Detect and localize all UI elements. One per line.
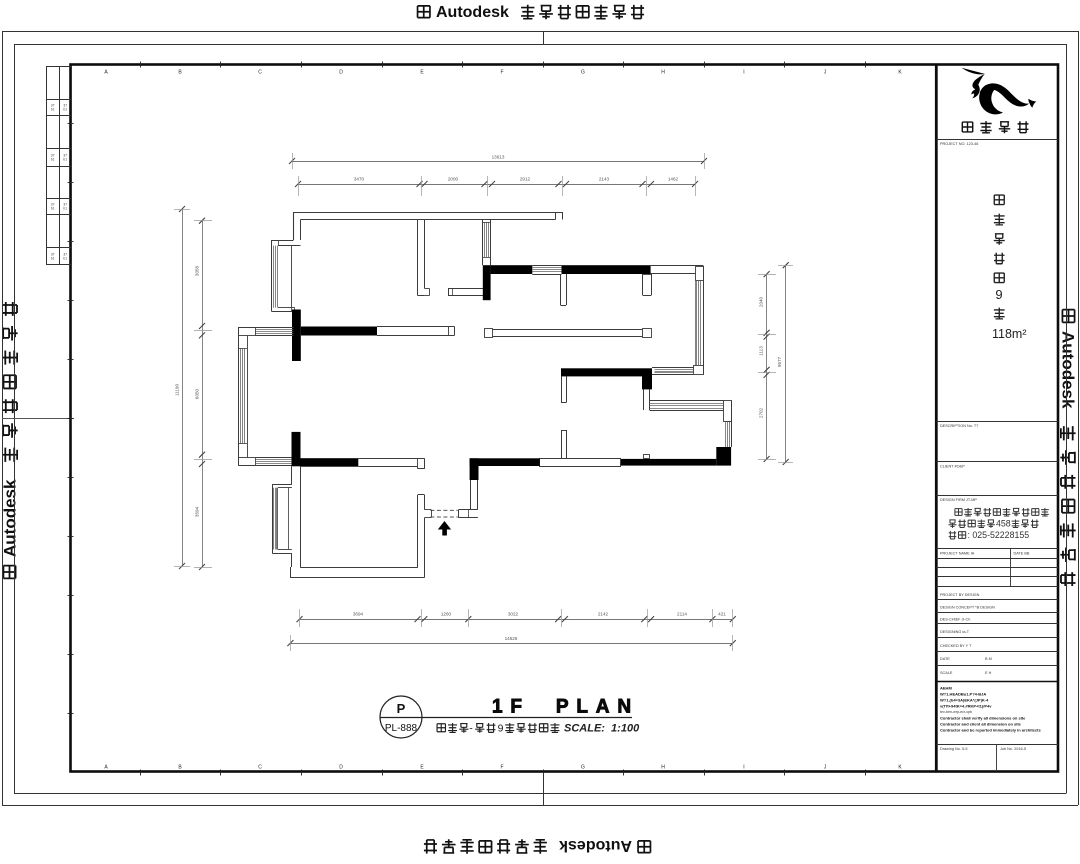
svg-text:3470: 3470 [354, 177, 365, 182]
svg-text:2114: 2114 [677, 612, 687, 617]
svg-text:1462: 1462 [668, 177, 679, 182]
svg-text:b1: b1 [63, 158, 67, 162]
svg-text:tev-ben-wrp-ecr-cpb: tev-ben-wrp-ecr-cpb [940, 710, 972, 714]
svg-text:DESIGN CONCEPT *B DESIGN: DESIGN CONCEPT *B DESIGN [940, 606, 995, 610]
svg-text:E H: E H [985, 671, 992, 675]
svg-text:b1: b1 [63, 207, 67, 211]
svg-text:F: F [500, 765, 503, 771]
svg-text:421: 421 [718, 612, 726, 617]
svg-text:b1: b1 [51, 158, 55, 162]
svg-text:v(Tft+94tK=4.#RKP+t1)/P4v: v(Tft+94tK=4.#RKP+t1)/P4v [940, 704, 992, 709]
svg-text:W?1.HEADBu1.P?4-BJA: W?1.HEADBu1.P?4-BJA [940, 692, 986, 697]
svg-text:2000: 2000 [448, 177, 459, 182]
svg-text:PROJECT NO. 123-46: PROJECT NO. 123-46 [940, 142, 978, 146]
svg-text:PROJECT NAME IA: PROJECT NAME IA [940, 552, 975, 556]
svg-text:Autodesk: Autodesk [436, 4, 509, 21]
svg-text:2702: 2702 [759, 407, 764, 418]
svg-text:9577: 9577 [777, 356, 782, 367]
svg-text:Autodesk: Autodesk [559, 837, 632, 854]
svg-text:b1: b1 [63, 108, 67, 112]
svg-text:1F PLAN: 1F PLAN [492, 697, 639, 718]
svg-text:Autodesk: Autodesk [1059, 331, 1078, 409]
svg-text:PROJECT BY DESIGN: PROJECT BY DESIGN [940, 593, 980, 597]
svg-text:DESCRIPTION No. T7: DESCRIPTION No. T7 [940, 424, 978, 428]
svg-text:CHECKED BY Y T: CHECKED BY Y T [940, 644, 972, 648]
svg-text:DATE: DATE [940, 657, 950, 661]
svg-text:b1: b1 [51, 256, 55, 260]
svg-text:Contractor shall verify all di: Contractor shall verify all dimensions o… [940, 716, 1026, 721]
svg-text:Contractor and client all dime: Contractor and client all dimension on s… [940, 722, 1022, 727]
svg-text:I: I [743, 765, 744, 771]
svg-text:3594: 3594 [194, 506, 199, 517]
svg-text:2142: 2142 [598, 612, 609, 617]
svg-text:-: - [469, 723, 473, 735]
svg-text:B M: B M [985, 657, 992, 661]
svg-text:DESIGN FIRM JT-MP: DESIGN FIRM JT-MP [940, 498, 977, 502]
svg-text:C: C [258, 70, 262, 76]
svg-text:9: 9 [995, 287, 1002, 302]
svg-text:AEHM: AEHM [940, 686, 952, 691]
svg-text:SCALE: 1:100: SCALE: 1:100 [564, 723, 640, 735]
svg-text:3022: 3022 [508, 612, 519, 617]
svg-text:DES-CHIEF Ji-Ch: DES-CHIEF Ji-Ch [940, 618, 970, 622]
svg-text:b1: b1 [51, 108, 55, 112]
svg-text:1113: 1113 [759, 346, 764, 356]
svg-text:13613: 13613 [492, 155, 505, 160]
svg-text:SCALE: SCALE [940, 671, 953, 675]
svg-text:Autodesk: Autodesk [0, 479, 19, 557]
svg-text:DESIGNING Ia-T: DESIGNING Ia-T [940, 630, 970, 634]
svg-text:3058: 3058 [194, 265, 199, 276]
svg-text:W?1.(b4=3A)EKA*(JP)K-4: W?1.(b4=3A)EKA*(JP)K-4 [940, 698, 989, 703]
svg-text:Job No. 2016-5: Job No. 2016-5 [1000, 747, 1026, 751]
svg-text:458: 458 [996, 519, 1011, 529]
svg-text:I: I [743, 70, 744, 76]
svg-text:2040: 2040 [759, 296, 764, 307]
svg-text:9: 9 [498, 723, 504, 735]
svg-text:: 025-52228155: : 025-52228155 [968, 530, 1030, 540]
svg-text:G: G [581, 765, 585, 771]
svg-text:PL-888: PL-888 [385, 723, 418, 734]
svg-text:F: F [500, 70, 503, 76]
svg-text:D: D [339, 765, 343, 771]
svg-text:2143: 2143 [599, 177, 610, 182]
svg-text:b1: b1 [51, 207, 55, 211]
svg-text:P: P [397, 701, 406, 716]
svg-text:3694: 3694 [353, 612, 364, 617]
svg-text:CLIENT #O&P: CLIENT #O&P [940, 465, 965, 469]
svg-text:DATE BB: DATE BB [1014, 552, 1030, 556]
svg-text:b1: b1 [63, 256, 67, 260]
svg-text:G: G [581, 70, 585, 76]
svg-text:Drawing No. 5-5: Drawing No. 5-5 [940, 747, 967, 751]
svg-text:6050: 6050 [194, 388, 199, 399]
svg-text:2912: 2912 [520, 177, 531, 182]
svg-text:11190: 11190 [175, 384, 180, 397]
svg-text:H: H [661, 70, 665, 76]
svg-text:Contractor and be reported imm: Contractor and be reported immediately i… [940, 728, 1041, 733]
svg-text:14528: 14528 [505, 636, 518, 641]
svg-text:1260: 1260 [441, 612, 452, 617]
svg-text:D: D [339, 70, 343, 76]
svg-text:118m²: 118m² [992, 327, 1027, 341]
svg-text:C: C [258, 765, 262, 771]
svg-text:H: H [661, 765, 665, 771]
